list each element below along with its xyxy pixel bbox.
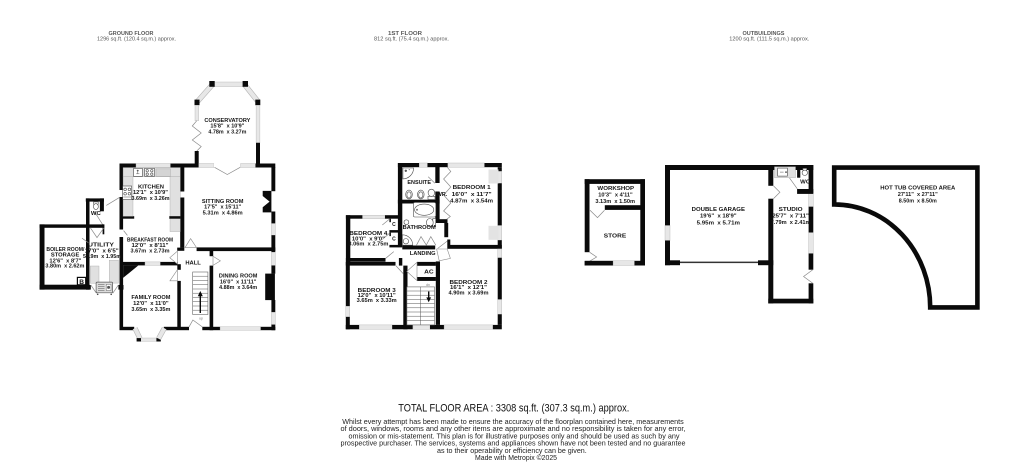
svg-text:1200 sq.ft. (111.5 sq.m.) appr: 1200 sq.ft. (111.5 sq.m.) approx. [729, 37, 809, 43]
svg-text:BATHROOM: BATHROOM [403, 225, 436, 231]
svg-text:WORKSHOP: WORKSHOP [597, 186, 634, 192]
svg-text:25'7" x 7'11": 25'7" x 7'11" [772, 214, 809, 220]
svg-text:STUDIO: STUDIO [779, 207, 804, 213]
svg-text:ENSUITE: ENSUITE [407, 180, 431, 186]
svg-text:7.79m x 2.41m: 7.79m x 2.41m [771, 220, 812, 226]
svg-text:4.78m x 3.27m: 4.78m x 3.27m [208, 129, 247, 135]
svg-text:up: up [199, 316, 203, 320]
svg-text:BEDROOM 1: BEDROOM 1 [453, 185, 491, 191]
svg-text:Made with Metropix ©2025: Made with Metropix ©2025 [475, 453, 557, 462]
svg-text:8.50m x 8.50m: 8.50m x 8.50m [899, 199, 938, 205]
svg-text:3.69m x 3.26m: 3.69m x 3.26m [132, 196, 171, 202]
svg-text:5.31m x 4.86m: 5.31m x 4.86m [203, 210, 244, 216]
svg-text:C: C [392, 222, 396, 228]
svg-text:C: C [392, 237, 396, 243]
svg-text:TOTAL FLOOR AREA : 3308 sq.ft.: TOTAL FLOOR AREA : 3308 sq.ft. (307.3 sq… [398, 402, 629, 414]
svg-text:3.67m x 2.73m: 3.67m x 2.73m [131, 249, 171, 255]
svg-text:3.06m x 2.75m: 3.06m x 2.75m [348, 242, 389, 248]
svg-text:3.13m x 1.50m: 3.13m x 1.50m [595, 199, 635, 205]
svg-text:WC: WC [91, 211, 101, 217]
svg-text:1296 sq.ft. (120.4 sq.m.) appr: 1296 sq.ft. (120.4 sq.m.) approx. [97, 37, 176, 43]
svg-text:3.65m x 3.35m: 3.65m x 3.35m [131, 307, 171, 313]
svg-text:27'11" x 27'11": 27'11" x 27'11" [898, 192, 939, 198]
svg-text:812 sq.ft. (75.4 sq.m.) approx: 812 sq.ft. (75.4 sq.m.) approx. [374, 37, 449, 43]
svg-text:STORE: STORE [604, 233, 627, 239]
svg-text:HOT TUB COVERED AREA: HOT TUB COVERED AREA [880, 186, 955, 192]
svg-text:HALL: HALL [185, 261, 201, 267]
svg-text:3.65m x 3.33m: 3.65m x 3.33m [357, 298, 398, 304]
svg-text:WR.: WR. [437, 192, 448, 198]
svg-text:B: B [79, 279, 84, 286]
svg-text:16'0" x 11'7": 16'0" x 11'7" [452, 192, 493, 198]
svg-text:5.95m x 5.71m: 5.95m x 5.71m [697, 221, 741, 227]
svg-text:4.88m x 3.64m: 4.88m x 3.64m [219, 285, 258, 291]
svg-text:WC: WC [800, 180, 810, 186]
svg-text:3.80m x 2.62m: 3.80m x 2.62m [45, 264, 85, 270]
svg-text:dn: dn [426, 283, 430, 287]
svg-text:4.90m x 3.69m: 4.90m x 3.69m [449, 291, 490, 297]
svg-text:AC: AC [424, 270, 434, 276]
svg-text:4.87m x 3.54m: 4.87m x 3.54m [450, 199, 494, 205]
svg-text:DOUBLE GARAGE: DOUBLE GARAGE [692, 207, 746, 213]
svg-text:19'6" x 18'9": 19'6" x 18'9" [700, 214, 737, 220]
svg-text:LANDING: LANDING [410, 251, 436, 257]
svg-text:10'3" x 4'11": 10'3" x 4'11" [598, 193, 633, 199]
svg-text:5.19m x 1.95m: 5.19m x 1.95m [83, 254, 122, 260]
